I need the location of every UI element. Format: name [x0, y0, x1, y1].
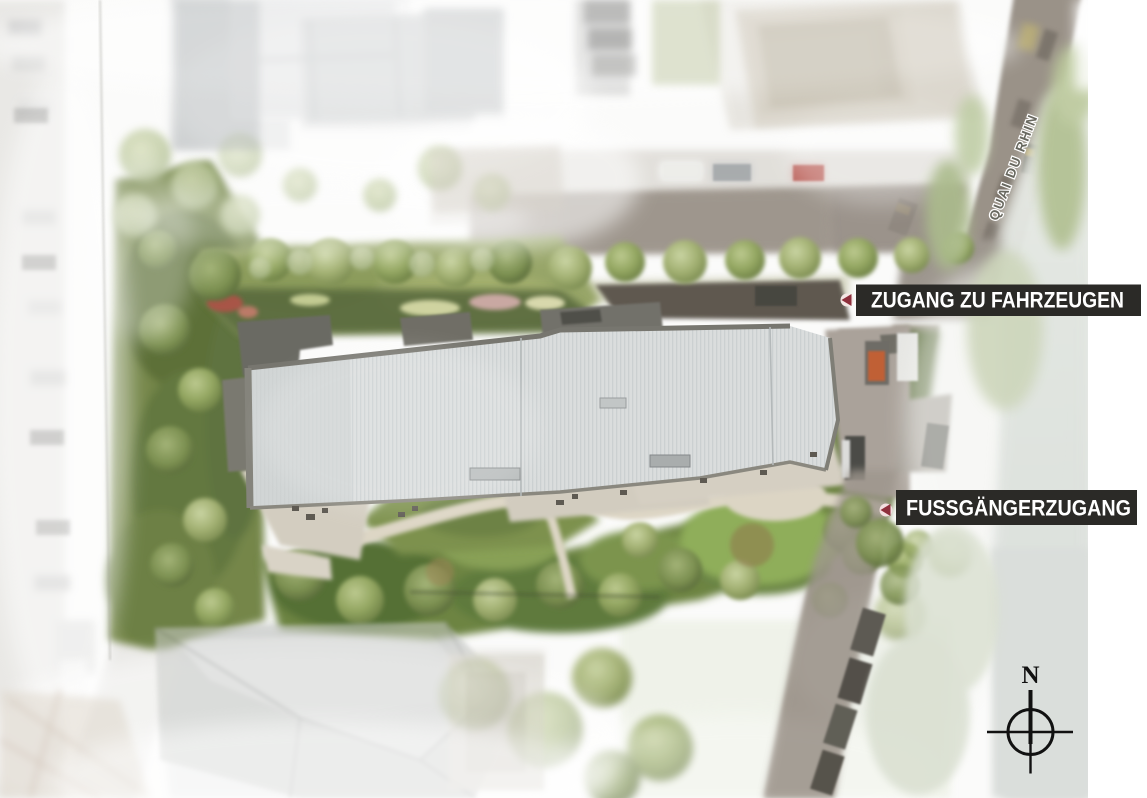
svg-text:ZUGANG ZU FAHRZEUGEN: ZUGANG ZU FAHRZEUGEN	[871, 288, 1124, 313]
svg-text:N: N	[1021, 662, 1039, 689]
svg-text:FUSSGÄNGERZUGANG: FUSSGÄNGERZUGANG	[906, 496, 1131, 521]
